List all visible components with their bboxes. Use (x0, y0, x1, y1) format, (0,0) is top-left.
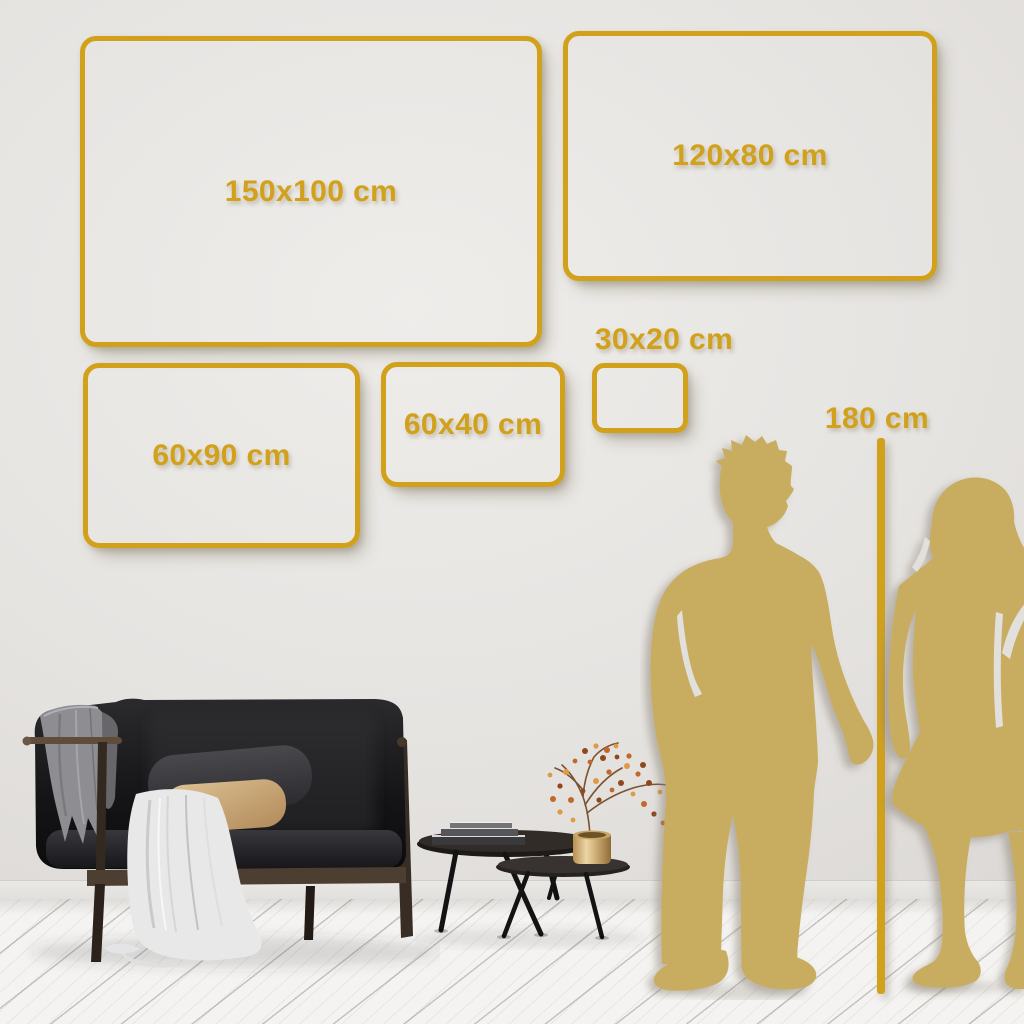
size-frame-label: 60x90 cm (152, 439, 290, 473)
books-stack (432, 822, 525, 845)
couple-silhouette (640, 430, 1024, 1000)
brass-pot (573, 831, 611, 865)
nesting-table-small (496, 856, 630, 937)
man-silhouette (651, 435, 874, 991)
size-frame-60x90: 60x90 cm (83, 363, 360, 548)
size-frame-label-30x20: 30x20 cm (589, 325, 739, 355)
leg-shadow (595, 936, 609, 940)
size-frame-label: 150x100 cm (225, 175, 398, 209)
size-frame-150x100: 150x100 cm (80, 36, 542, 347)
size-frame-60x40: 60x40 cm (381, 362, 565, 487)
leg-shadow (497, 935, 511, 939)
size-frame-label: 120x80 cm (672, 139, 827, 173)
size-frame-label: 60x40 cm (404, 408, 542, 442)
tables-floor-shadow (415, 929, 645, 947)
size-guide-scene: 150x100 cm 120x80 cm 60x90 cm 60x40 cm 3… (0, 0, 1024, 1024)
sofa-illustration (15, 690, 440, 980)
woman-silhouette (888, 477, 1024, 989)
nesting-table-large (417, 830, 595, 934)
size-frame-120x80: 120x80 cm (563, 31, 937, 281)
leg-shadow (434, 929, 448, 933)
leg-shadow (534, 933, 548, 937)
size-frame-30x20 (592, 363, 688, 433)
post-knob (397, 737, 407, 747)
sofa-arm-dowel (26, 737, 122, 744)
dowel-knob (23, 737, 32, 746)
sofa-middle-leg (304, 886, 315, 940)
